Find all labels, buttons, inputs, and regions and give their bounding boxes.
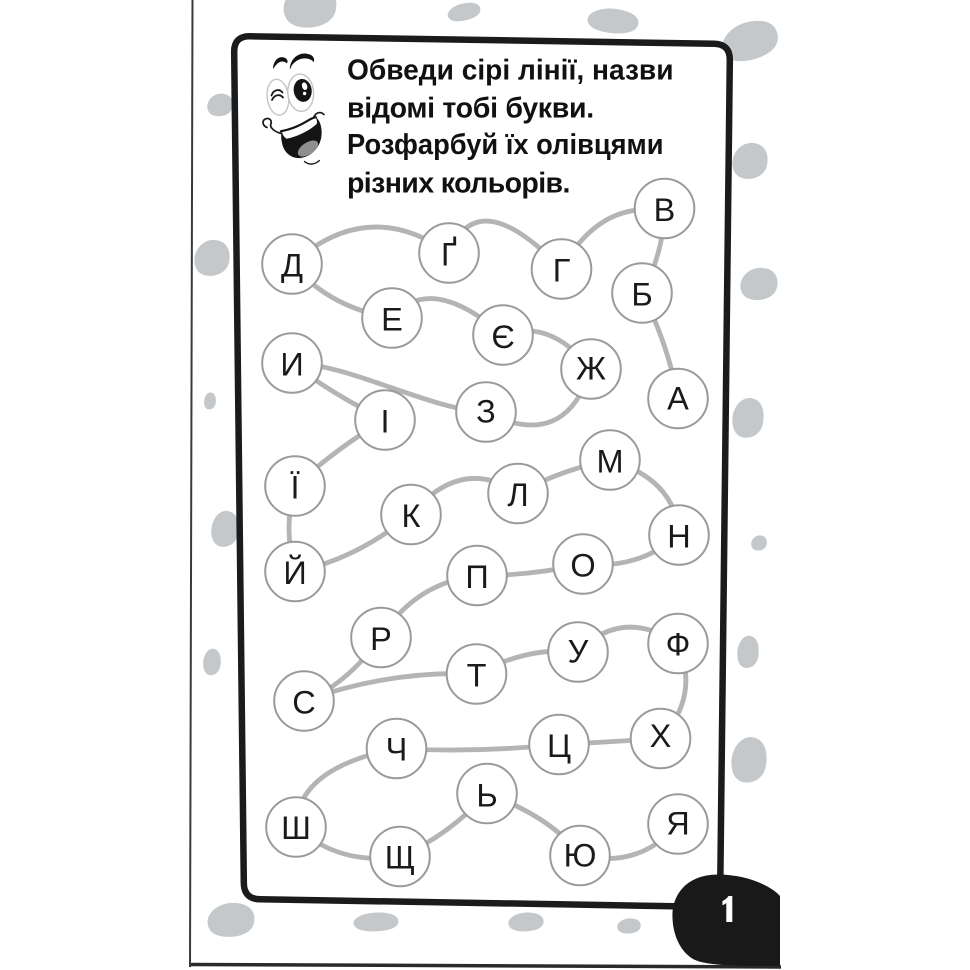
svg-text:Б: Б: [631, 276, 652, 312]
svg-text:Ж: Ж: [576, 350, 606, 386]
svg-text:Л: Л: [507, 477, 528, 513]
svg-text:різних кольорів.: різних кольорів.: [347, 168, 570, 200]
svg-text:І: І: [380, 404, 389, 440]
svg-text:Н: Н: [667, 518, 690, 554]
svg-text:відомі тобі букви.: відомі тобі букви.: [347, 93, 594, 125]
svg-text:Х: Х: [650, 718, 672, 754]
svg-text:Ц: Ц: [547, 728, 571, 764]
svg-text:Е: Е: [381, 301, 403, 337]
svg-text:О: О: [570, 547, 595, 583]
svg-text:А: А: [667, 381, 689, 417]
svg-text:М: М: [596, 443, 623, 479]
svg-text:У: У: [568, 634, 589, 670]
svg-text:С: С: [292, 684, 315, 720]
svg-text:Д: Д: [281, 247, 303, 283]
svg-text:Щ: Щ: [385, 840, 415, 876]
svg-text:З: З: [476, 393, 496, 429]
svg-text:Обведи сірі лінії, назви: Обведи сірі лінії, назви: [347, 55, 674, 87]
svg-text:В: В: [654, 192, 676, 228]
svg-text:Ь: Ь: [476, 777, 497, 813]
svg-text:П: П: [465, 559, 488, 595]
svg-text:Т: Т: [467, 657, 487, 693]
svg-text:Розфарбуй їх олівцями: Розфарбуй їх олівцями: [347, 129, 664, 161]
svg-text:Ш: Ш: [281, 810, 311, 846]
svg-text:Ю: Ю: [564, 838, 597, 874]
svg-text:Р: Р: [370, 621, 392, 657]
svg-text:Ч: Ч: [386, 732, 408, 768]
svg-text:Я: Я: [666, 806, 689, 842]
svg-text:К: К: [402, 498, 421, 534]
svg-text:Ї: Ї: [290, 470, 299, 506]
svg-text:Є: Є: [491, 319, 514, 355]
svg-text:Ґ: Ґ: [441, 236, 457, 273]
svg-text:Й: Й: [283, 554, 306, 591]
svg-text:И: И: [280, 346, 303, 382]
svg-text:Ф: Ф: [666, 627, 691, 663]
svg-text:Г: Г: [553, 252, 571, 288]
